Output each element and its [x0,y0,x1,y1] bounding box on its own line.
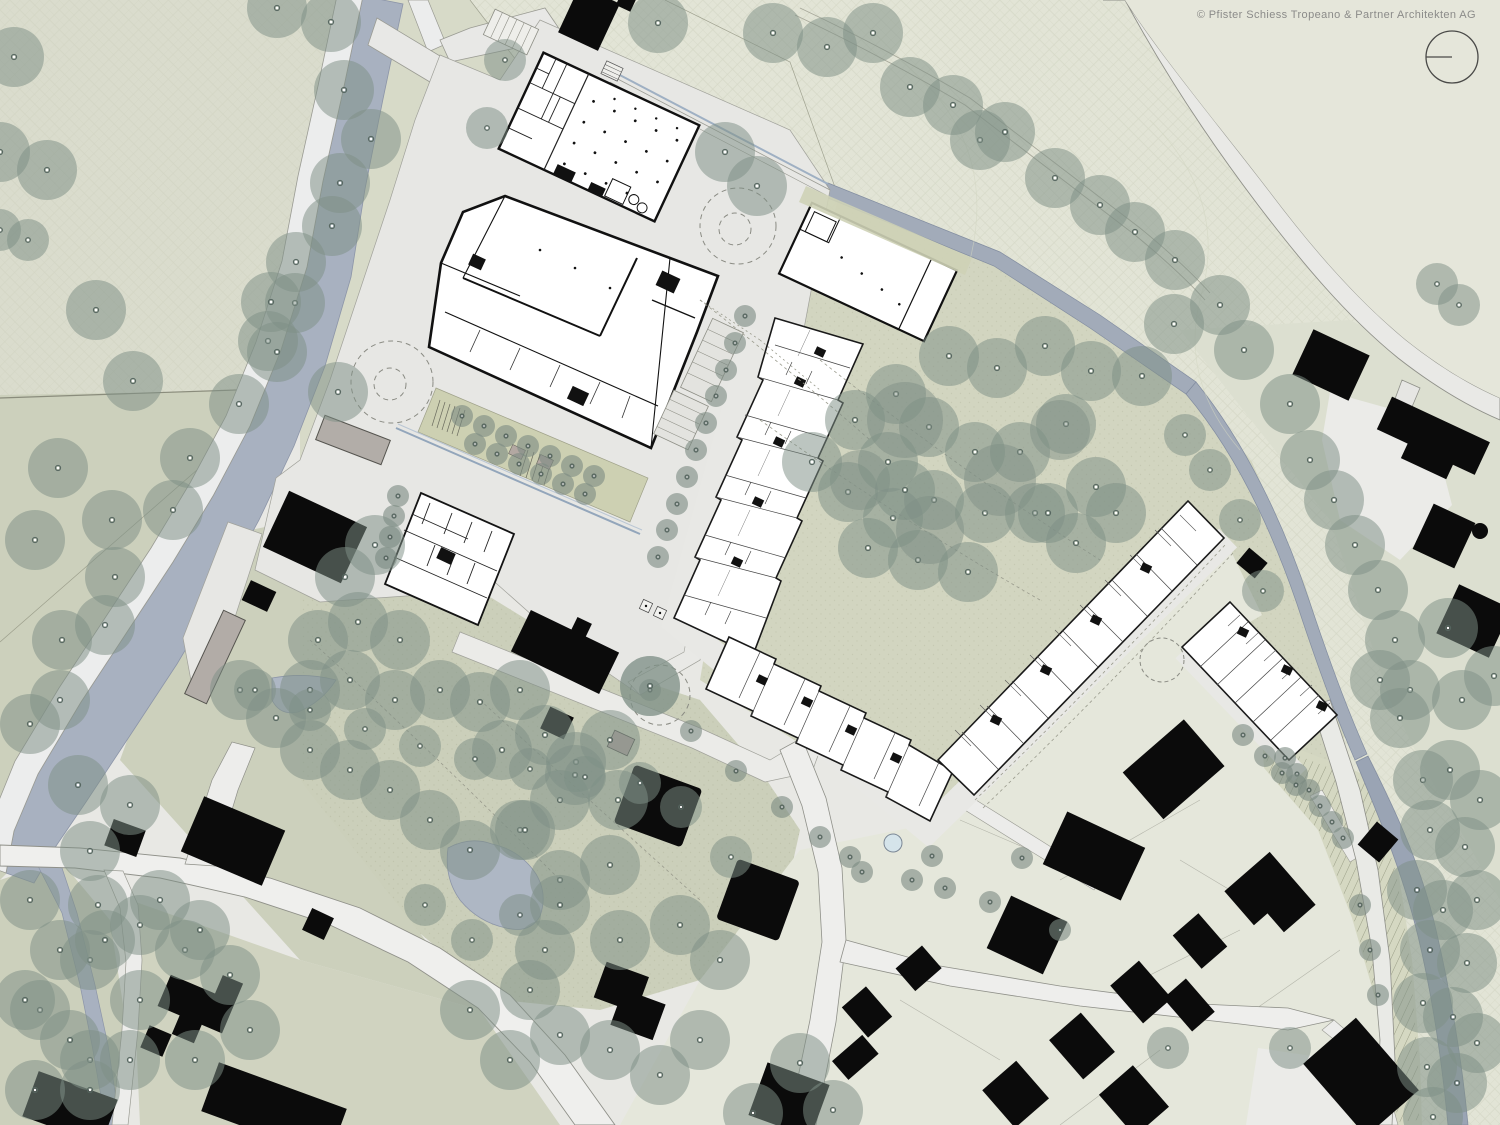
svg-text:© Pfister Schiess Tropeano & P: © Pfister Schiess Tropeano & Partner Arc… [1197,9,1476,21]
